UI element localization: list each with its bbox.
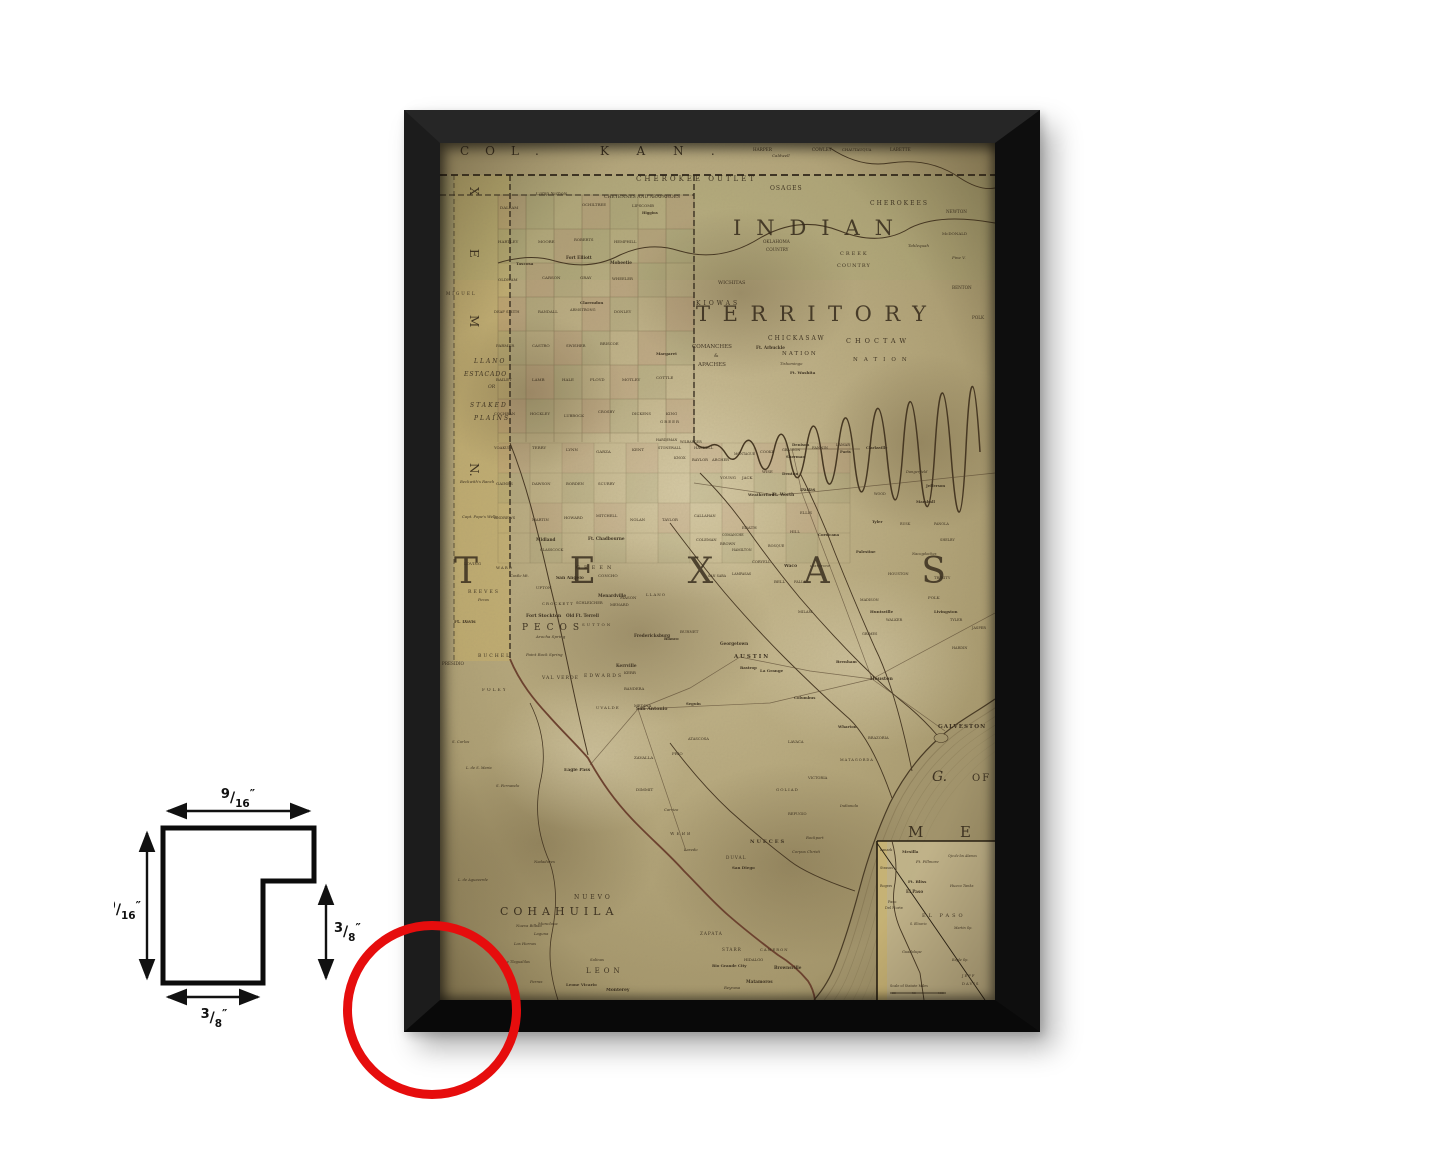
map-label: Ft. Bliss [908,879,927,884]
map-label: RANDALL [538,309,558,314]
map-label: Midland [536,537,556,542]
map-label: LLANO [473,358,506,365]
map-label: CHAUTAUQUA [842,147,872,152]
map-label: LLANO [646,592,666,597]
map-label: BAYLOR [692,458,708,462]
map-label: HILL [790,529,800,534]
map-label: Clarksville [866,446,888,450]
map-label: YOUNG [719,475,736,480]
map-label: RUSK [900,522,911,526]
map-label: Ft. Worth [772,492,794,497]
map-label: KERR [624,670,637,675]
map-vignette [440,143,995,1000]
map-label: MITCHELL [596,514,618,518]
map-label: SCHLEICHER [576,601,603,605]
map-label: COUNTRY [766,247,789,252]
map-label: EL PASO [922,913,966,919]
map-label: Ft. Washita [790,370,816,375]
corner-highlight-circle [343,921,521,1099]
map-label: HARPER [753,147,773,152]
map-label: LAVACA [788,740,804,744]
map-label: MOORE [538,239,555,244]
map-label: Rockport [805,835,824,840]
map-label: CREEK [840,251,869,257]
map-label: JEFF [961,973,976,978]
map-label: HOWARD [564,515,583,520]
map-label: Castle Mt. [510,574,529,578]
map-label: POLK [972,315,985,320]
map-label: E [960,823,971,841]
map-label: NOLAN [630,517,646,522]
map-label: Rio Grande City [712,963,747,968]
map-label: Del Norte [885,906,903,910]
map-label: BROWN [720,542,736,546]
map-label: Tascosa [516,261,534,266]
map-label: OCHILTREE [582,202,606,207]
map-label: Nacogdoches [911,552,937,556]
map-label: CONCHO [598,573,618,578]
map-label: Caldwell [772,153,790,158]
moulding-cross-section [163,828,314,983]
dimension-label-bottom: 3/8″ [201,1007,228,1030]
map-label: Strauss [880,866,893,870]
map-label: S. Carlos [452,739,469,744]
map-label: SAN SABA [708,574,727,578]
map-label: Sherman [786,454,805,459]
map-label: ZAVALLA [634,755,653,760]
map-label: Eagle Pass [564,768,591,773]
map-label: Camp Nichols [536,192,568,197]
map-label: WEBB [670,832,692,837]
map-label: GLASSCOCK [540,548,564,552]
map-label: COOKE [760,450,775,454]
map-label: Dangerfield [905,470,928,474]
map-label: UPTON [536,585,552,590]
map-label: CALLAHAN [694,514,716,518]
map-label: GALVESTON [938,724,986,730]
map-label: BELL [774,579,786,584]
map-label: Brownsville [774,965,802,970]
map-label: STONEWALL [658,446,682,450]
map-label: Mobeetie [610,260,632,265]
texas-antique-map: TEXASINDIANTERRITORYCOL.KAN.HARPERCaldwe… [440,143,995,1000]
map-label: DONLEY [614,309,632,314]
map-label: HOUSTON [888,572,909,576]
map-label: Ft. Davis [454,620,476,625]
dimension-label-left: 9/16″ [114,899,142,922]
map-label: Brenham [836,659,857,664]
map-label: ROBERTS [574,237,594,242]
map-label: LAMAR [836,443,850,447]
map-label: YOAKUM [493,445,512,450]
map-label: Beckwith's Ranch [459,479,495,484]
map-label: Ft. Arbuckle [756,345,785,350]
map-label: Paris [840,449,851,454]
map-label: WOOD [874,492,886,496]
map-label: STARR [722,947,742,952]
map-label: CAMERON [760,947,789,952]
map-label: X [467,187,481,196]
map-label: CASTRO [532,343,550,348]
map-label: ANDREWS [493,515,516,520]
map-label: Arocha Spring [535,634,566,639]
map-label: CARSON [542,275,561,280]
map-label: San Angelo [556,576,584,581]
map-label: COL. [460,144,555,158]
map-label: Los Hornos [513,941,536,946]
map-label: COWLEY [812,147,832,152]
map-label: KENT [632,447,644,452]
map-label: Laredo [683,847,698,852]
map-label: CHEROKEE OUTLET [636,175,757,183]
map-label: REEVES [468,589,500,595]
map-label: Huntsville [870,609,894,614]
map-label: TRINITY [934,576,951,580]
map-label: LYNN [566,447,579,452]
map-label: DALLAM [500,205,518,210]
map-label: HAMILTON [732,548,752,552]
map-label: Laguna [533,931,549,936]
map-label: Margaret [656,351,677,356]
map-label: BAILEY [496,377,512,382]
map-label: Martin Sp. [953,926,972,930]
map-label: HARTLEY [498,239,519,244]
map-label: G. [932,769,947,785]
map-label: PRESIDIO [442,661,465,666]
map-label: MARTIN [532,517,549,522]
map-label: Parras [529,979,543,984]
map-label: ERATH [742,525,757,530]
map-label: Eagle Sp. [951,958,968,962]
map-label: Blanco [664,636,679,641]
map-label: CORYELL [752,560,771,564]
map-label: Houston [870,676,893,682]
map-label: APACHES [697,362,726,368]
map-label: Corsicana [818,532,840,537]
map-artwork: TEXASINDIANTERRITORYCOL.KAN.HARPERCaldwe… [440,143,995,1000]
map-label: COHAHUILA [500,905,618,918]
map-label: L. de Aguaverde [457,878,488,882]
map-label: VICTORIA [807,776,828,780]
map-label: GRIMES [862,632,878,636]
map-label: BENTON [952,285,972,290]
map-label: L. de S. Maria [465,766,492,770]
map-label: El Paso [906,889,923,894]
map-label: Reynosa [723,985,741,990]
map-label: UVALDE [596,705,620,710]
map-label: KNOX [674,456,686,460]
map-label: JACK [741,475,754,480]
map-label: DUVAL [726,855,746,860]
map-label: Kerrville [616,663,637,668]
map-label: Palestine [856,549,876,554]
map-label: San Diego [732,865,755,870]
map-label: OLDHAM [498,277,518,282]
map-label: LUBBOCK [564,413,584,418]
map-label: SHELBY [940,538,955,542]
map-label: PARMER [496,343,515,348]
map-label: Tishomingo [780,361,803,366]
map-label: Jefferson [925,483,945,488]
map-label: OR [488,384,496,390]
map-label: LIPSCOMB [632,203,654,208]
map-label: Higgins [642,211,658,215]
map-label: San Antonio [636,706,667,712]
map-label: MASON [620,595,637,600]
map-label: Ft. Chadbourne [588,536,625,541]
map-label: DAVIS [962,981,979,986]
frame-profile-diagram: 9/16″ 9/16″ 3/8″ 3/8″ [114,784,366,1036]
map-label: STAKED [470,402,508,409]
map-label: ARMSTRONG [569,308,596,312]
map-label: & [714,353,719,359]
map-label: GARZA [596,449,611,454]
map-label: BRAZORIA [868,736,889,740]
map-label: Tahlequah [908,243,929,248]
map-label: EDWARDS [584,673,623,679]
map-label: CHOCTAW [846,337,910,345]
map-label: Weatherford [747,492,775,497]
map-label: ZAPATA [700,931,723,936]
map-label: Salinas [590,957,604,962]
map-label: ARCHER [711,458,729,462]
map-label: BOSQUE [768,544,785,548]
map-label: LOVING [464,561,481,566]
map-label: Pecos [477,597,489,602]
map-label: WISE [762,469,773,474]
map-label: DICKENS [632,411,651,416]
map-label: La Grange [760,668,784,673]
map-label: PECOS [522,623,585,633]
map-label: ELLIS [800,510,812,515]
map-label: KING [666,411,677,416]
map-label: Scale of Statute Miles [890,984,928,988]
map-label: Fort Stockton [526,613,562,619]
map-label: HARDEMAN [656,438,678,442]
map-label: WHEELER [612,276,633,281]
map-label: COMANCHE [722,533,744,537]
map-label: S. Elizario [910,922,927,926]
map-label: NATION [782,351,818,357]
map-label: HEMPHILL [614,239,637,244]
map-label: TERRY [532,445,546,450]
map-label: NUEVO [574,894,613,901]
map-label: SCURRY [598,481,615,486]
map-label: N. [467,463,481,477]
map-label: POLK [928,595,941,600]
map-label: S. Fernando [496,783,520,788]
map-label: WARD [496,565,513,570]
map-label: BRISCOE [600,341,619,346]
map-label: MOTLEY [622,377,641,382]
map-label: OKLAHOMA [763,239,791,244]
map-label: HOCKLEY [530,411,550,416]
map-label: CROSBY [598,409,615,414]
map-label: GREEN [576,565,615,571]
map-label: MIGUEL [446,291,477,296]
map-label: Paso [888,900,896,904]
map-label: HIDALGO [744,957,763,962]
map-label: Carrizo [664,807,679,812]
map-label: COCHRAN [494,411,516,416]
map-label: Lanark [880,848,893,852]
map-label: REFUGIO [788,812,807,816]
dimension-label-top: 9/16″ [221,787,256,810]
map-label: GREER [660,419,680,424]
map-label: Fort Elliott [566,255,592,260]
dimension-label-right: 3/8″ [334,921,361,944]
map-label: COLEMAN [696,538,717,542]
map-label: TYLER [950,618,963,622]
map-label: Tyler [872,519,883,524]
map-label: E [467,249,481,258]
map-label: FANNIN [812,446,829,450]
map-label: Columbus [794,695,815,700]
map-label: Georgetown [720,641,748,646]
map-label: Denison [792,442,810,447]
map-label: FALLS [794,580,807,584]
map-label: Livingston [934,609,958,614]
map-label: KAN. [600,144,743,158]
map-label: JASPER [971,626,986,630]
map-label: COUNTRY [837,263,871,269]
map-label: Rogers [880,884,892,888]
map-label: MONTAGUE [734,452,756,456]
map-label: Leone Vicario [566,982,597,987]
map-label: CROCKETT [542,601,574,606]
map-label: Bastrop [740,665,757,670]
map-label: Seguin [686,701,701,706]
map-label: Pine V. [951,255,966,260]
map-label: GAINES [496,481,513,486]
map-label: Corpus Christi [792,849,821,854]
map-label: HASKELL [694,445,714,450]
map-label: Matamoros [746,979,773,984]
map-label: McDONALD [942,231,967,236]
map-label: MENARD [610,602,629,607]
map-label: NUECES [750,839,786,845]
map-label: Denton [782,471,798,476]
map-label: Clarendon [580,300,603,305]
map-label: 100 [938,991,944,995]
map-label: M [467,315,481,327]
map-label: Old Ft. Terrell [566,613,599,618]
map-label: KIOWAS [696,300,740,307]
map-label: LAMB [532,377,545,382]
map-label: LAMPASAS [732,572,752,576]
map-label: ATASCOSA [687,737,709,741]
map-label: M [908,823,923,841]
map-label: COTTLE [656,375,673,380]
map-label: Ojo de los Alamos [948,854,977,858]
product-photo: TEXASINDIANTERRITORYCOL.KAN.HARPERCaldwe… [0,0,1445,1156]
map-label: SWISHER [566,343,586,348]
map-label: Paint Rock Spring [525,652,563,657]
map-label: LIMESTONE [810,564,831,568]
map-label: CHEYENNES AND ARAPAHOES [604,194,680,200]
map-label: Waco [783,564,797,569]
map-label: LEON [586,967,624,975]
map-label: SUTTON [582,622,612,627]
map-label: OF [972,773,991,784]
map-label: BANDERA [624,686,645,691]
map-label: WALKER [886,618,902,622]
map-label: LABETTE [890,147,911,152]
map-label: Wharton [837,724,857,729]
map-label: HARDIN [952,646,967,650]
map-label: FOLEY [482,688,508,693]
map-label: DIMMIT [636,787,654,792]
map-label: OSAGES [770,185,803,192]
map-label: BUCHEL [478,653,511,659]
map-label: Marshall [916,499,935,504]
map-label: Capt. Pope's Wells [462,514,497,519]
map-label: Hueco Tanks [949,884,974,888]
map-label: Nueva Bilbao [515,923,543,928]
map-label: FLOYD [590,377,605,382]
map-label: Guadalupe [902,950,922,954]
map-label: NEWTON [946,209,967,214]
map-label: 20 [892,991,896,995]
map-label: PANOLA [934,522,949,526]
map-label: CHICKASAW [768,335,826,342]
map-label: MATAGORDA [840,758,874,762]
map-label: DEAF SMITH [494,310,520,314]
map-label: GRAYSON [782,448,800,452]
map-label: WICHITAS [718,280,746,286]
map-label: TAYLOR [662,517,678,522]
map-label: MADISON [860,598,879,602]
map-label: Monterey [606,988,630,993]
map-label: BORDEN [566,481,585,486]
map-label: AUSTIN [733,654,770,660]
map-label: 50 [912,991,916,995]
map-label: VAL VERDE [541,675,579,681]
map-label: NATION [853,357,913,363]
map-label: Ft. Fillmore [915,859,940,864]
map-label: CHEROKEES [870,200,929,207]
map-label: Indianola [839,803,859,808]
map-label: HALE [562,377,574,382]
map-label: Dallas [800,488,816,493]
map-label: COMANCHES [692,344,732,350]
map-label: FRIO [672,751,683,756]
map-label: GRAY [580,275,592,280]
map-label: WILBARGER [680,440,702,444]
map-label: BURNET [680,629,699,634]
map-label: Mesilla [902,849,919,854]
map-label: DAWSON [532,481,551,486]
map-label: GOLIAD [776,787,799,792]
map-label: MILAM [798,609,813,614]
map-label: Nadadores [533,859,555,864]
picture-frame: TEXASINDIANTERRITORYCOL.KAN.HARPERCaldwe… [404,110,1040,1032]
map-label: PLAINS [473,415,510,422]
